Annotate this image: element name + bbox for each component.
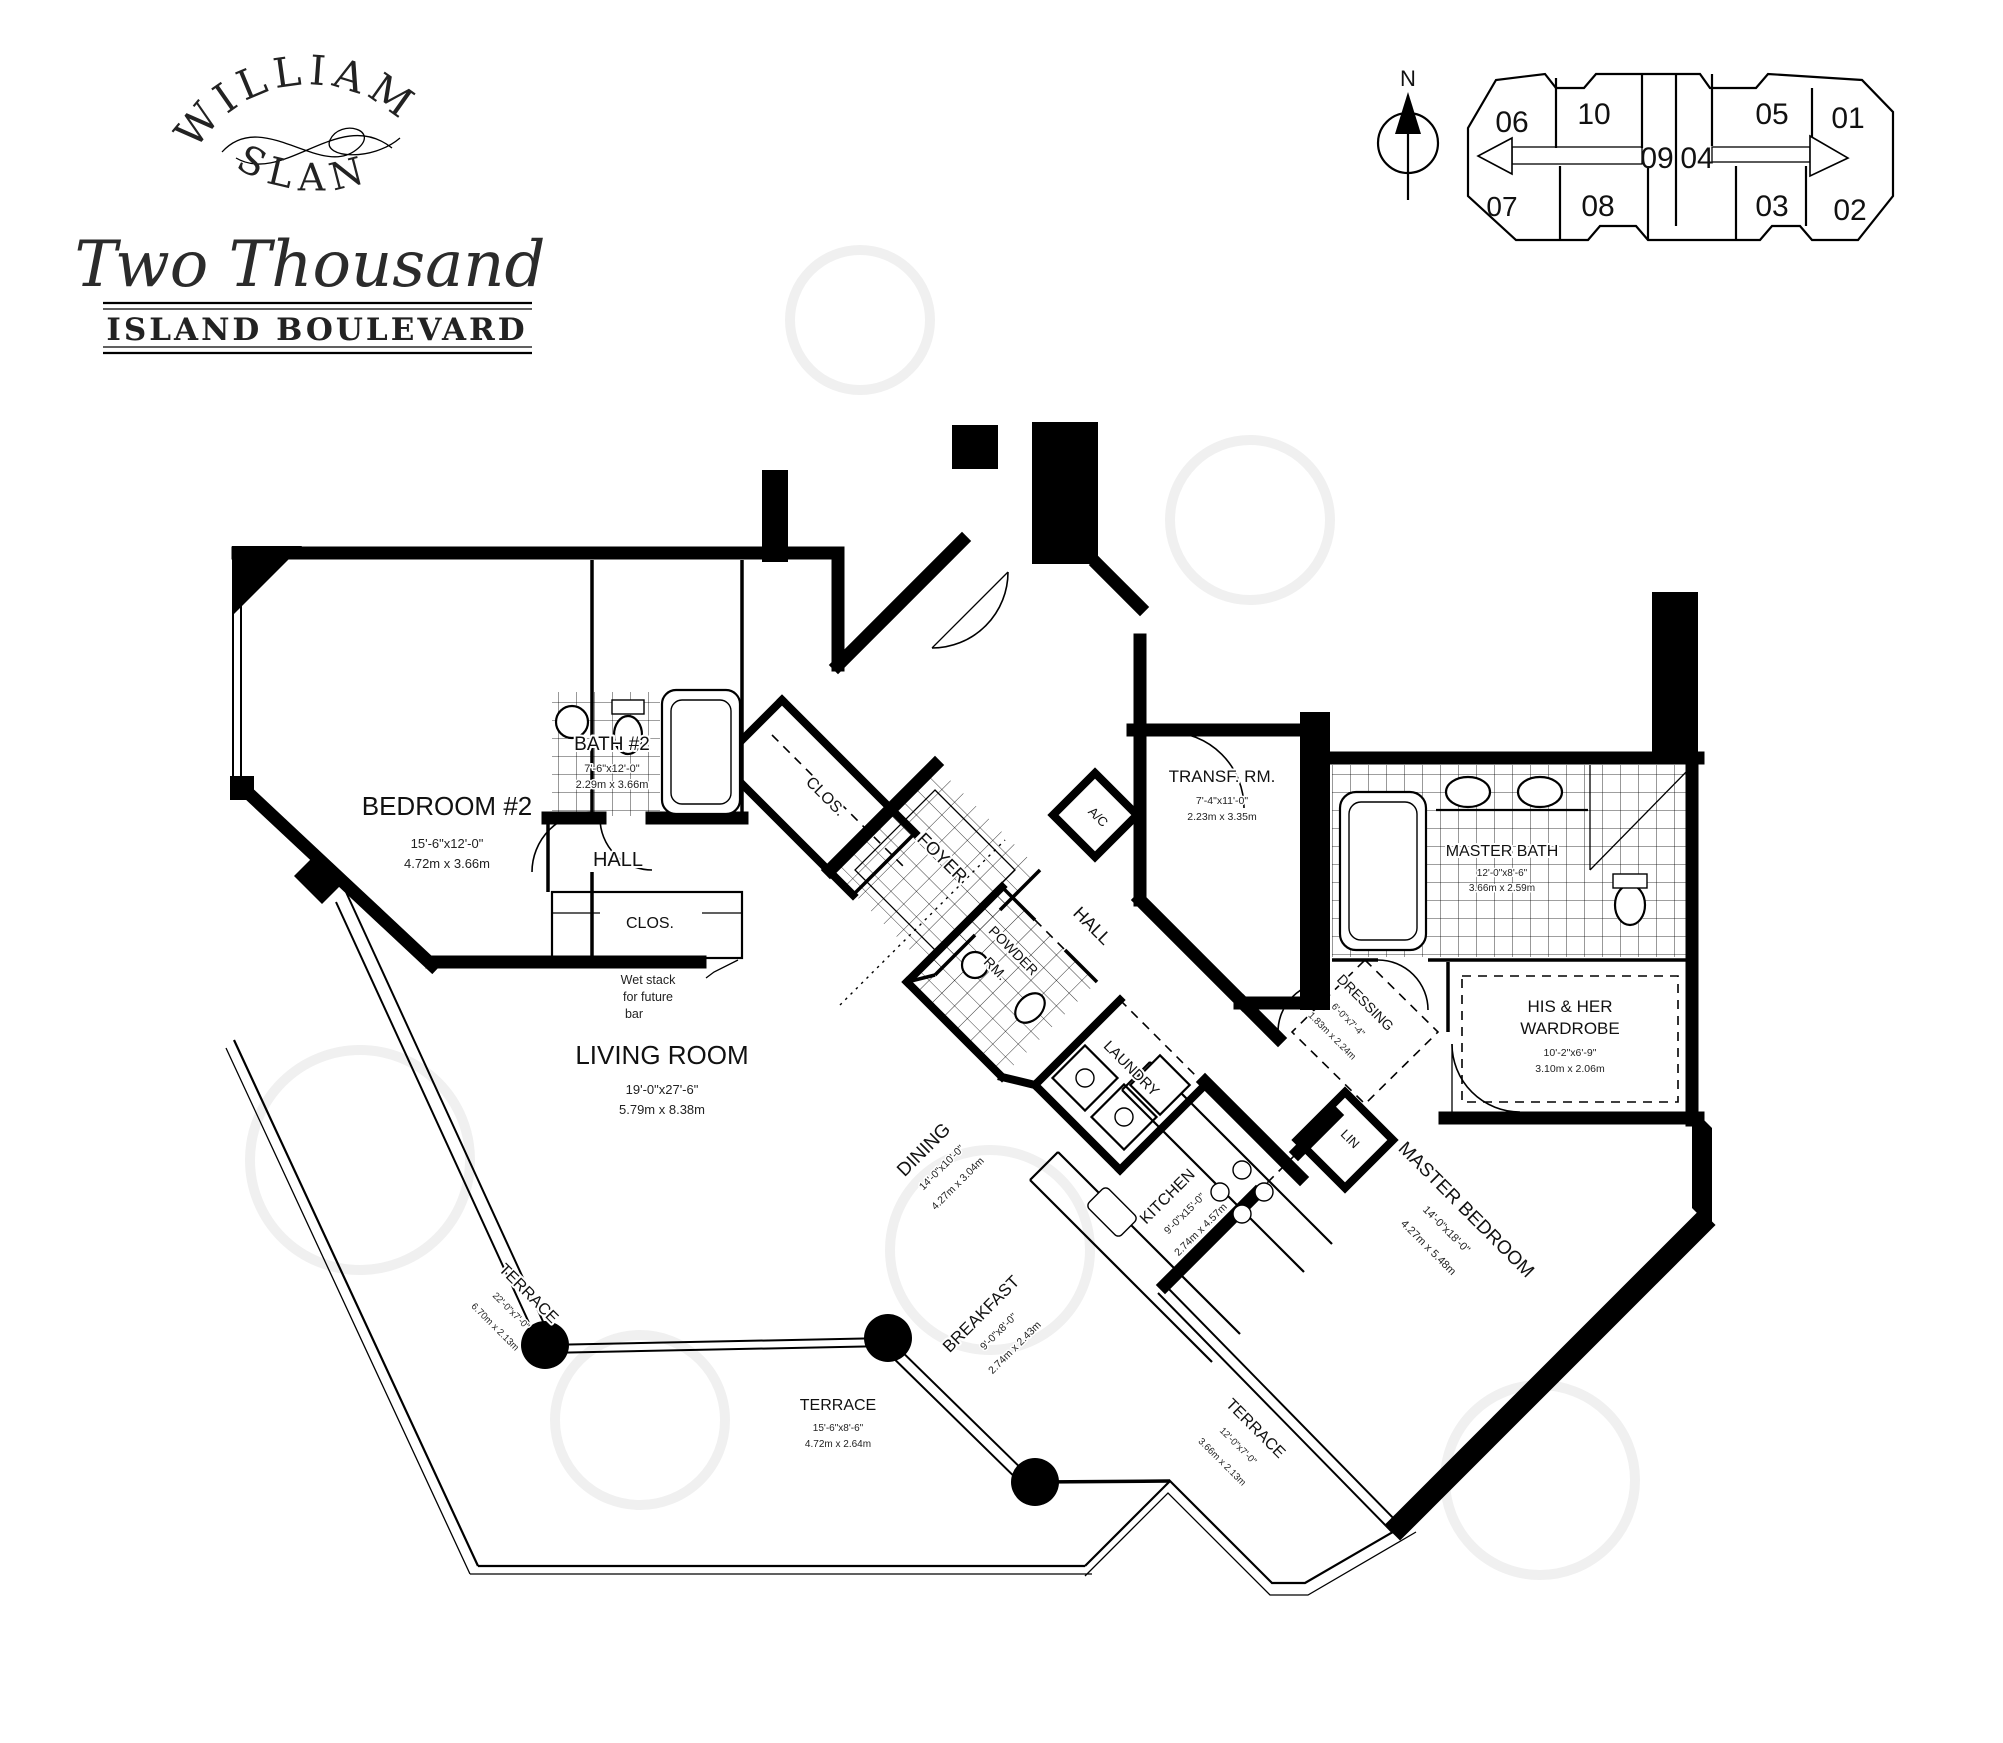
toilet [1615,885,1645,925]
label-dressing: DRESSING [1334,971,1397,1034]
dims-master-bath-metric: 3.66m x 2.59m [1469,883,1535,894]
label-master-bath: MASTER BATH [1446,843,1559,860]
brand-line2: Two Thousand [75,228,546,302]
note-line1: Wet stack [621,973,676,987]
brand-logo: WILLIAMS ISLAND Two Thousand ISLAND BOUL… [0,0,545,353]
building-key-plan: 06 10 09 04 05 01 08 03 02 07 [1468,74,1893,240]
note-line3: bar [625,1007,643,1021]
key-unit-06: 06 [1495,106,1528,139]
sink [1518,777,1562,807]
label-hall-center: HALL [1069,903,1115,949]
sink [1446,777,1490,807]
wet-stack-note: Wet stack for future bar [621,960,738,1021]
key-unit-05: 05 [1755,98,1788,131]
label-ac: A/C [1085,804,1111,830]
north-compass: N [1378,66,1438,200]
key-unit-09: 09 [1640,142,1673,175]
floor-plan: BEDROOM #2 15'-6"x12'-0" 4.72m x 3.66m B… [226,422,1712,1595]
column [1011,1458,1059,1506]
key-unit-07: 07 [1486,191,1517,222]
label-hall-west: HALL [593,849,643,871]
dims-master-bath-imperial: 12'-0"x8'-6" [1477,868,1528,879]
label-terrace-left: TERRACE [495,1261,561,1327]
dims-terrace-bottom-metric: 4.72m x 2.64m [805,1439,871,1450]
dims-terrace-bottom-imperial: 15'-6"x8'-6" [813,1423,864,1434]
label-kitchen: KITCHEN [1137,1166,1199,1228]
key-unit-04: 04 [1680,142,1713,175]
key-plan-unit-arrow-right [1712,136,1848,176]
label-clos-west: CLOS. [626,915,674,932]
dims-bedroom2-imperial: 15'-6"x12'-0" [411,836,484,851]
floor-plan-page: WILLIAMS ISLAND Two Thousand ISLAND BOUL… [0,0,2003,1743]
dims-wardrobe-metric: 3.10m x 2.06m [1535,1063,1605,1075]
label-bedroom2: BEDROOM #2 [362,791,533,821]
key-unit-02: 02 [1833,194,1866,227]
label-living: LIVING ROOM [575,1040,748,1070]
label-wardrobe-1: HIS & HER [1527,997,1612,1016]
key-unit-03: 03 [1755,190,1788,223]
key-unit-01: 01 [1831,102,1864,135]
dims-transfer-metric: 2.23m x 3.35m [1187,811,1257,823]
label-terrace-right: TERRACE [1222,1396,1288,1462]
dims-bedroom2-metric: 4.72m x 3.66m [404,856,490,871]
label-transfer: TRANSF. RM. [1169,767,1276,786]
dims-bath2-metric: 2.29m x 3.66m [576,779,649,791]
dims-transfer-imperial: 7'-4"x11'-0" [1196,795,1248,807]
label-terrace-bottom: TERRACE [800,1397,876,1414]
north-arrow [1395,92,1421,134]
column [864,1314,912,1362]
brand-banner-text: ISLAND BOULEVARD [106,312,527,348]
label-wardrobe-2: WARDROBE [1520,1019,1620,1038]
kitchen-sink [1086,1186,1138,1238]
dims-wardrobe-imperial: 10'-2"x6'-9" [1544,1047,1597,1059]
north-label: N [1400,66,1416,91]
label-master-bedroom: MASTER BEDROOM [1394,1138,1538,1282]
label-lin: LIN [1338,1126,1363,1151]
floor-plan-sheet: WILLIAMS ISLAND Two Thousand ISLAND BOUL… [0,0,2003,1743]
key-unit-10: 10 [1577,98,1610,131]
column [521,1321,569,1369]
dims-living-metric: 5.79m x 8.38m [619,1102,705,1117]
note-line2: for future [623,990,673,1004]
label-bath2: BATH #2 [574,734,650,755]
key-unit-08: 08 [1581,190,1614,223]
brand-banner: ISLAND BOULEVARD [103,303,532,353]
dims-bath2-imperial: 7'-6"x12'-0" [584,763,640,775]
dims-living-imperial: 19'-0"x27'-6" [626,1082,699,1097]
label-clos-diag: CLOS. [802,774,848,820]
